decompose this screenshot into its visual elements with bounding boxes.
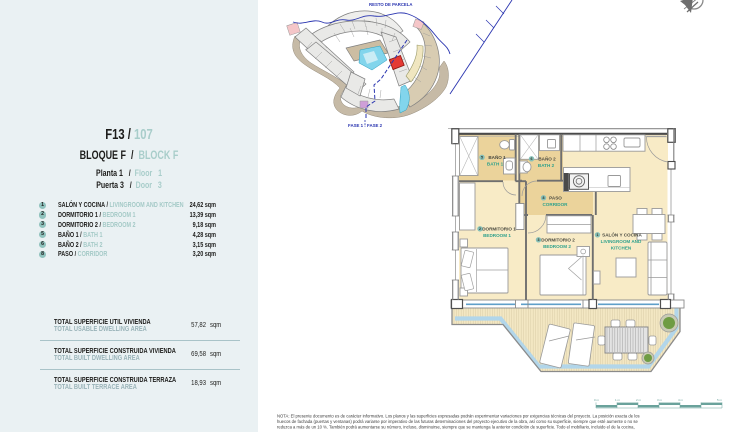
svg-text:FASE 1: FASE 1 [348,123,364,128]
svg-text:BAÑO 1: BAÑO 1 [488,154,506,160]
svg-text:NOTA: El presente documento es: NOTA: El presente documento es de caráct… [277,414,640,419]
svg-text:SALÓN Y COCINA: SALÓN Y COCINA [602,231,642,238]
svg-text:2 m: 2 m [636,398,642,402]
svg-text:3: 3 [538,238,540,242]
svg-text:1 m: 1 m [615,398,621,402]
svg-text:LIVINGROOM AND: LIVINGROOM AND [601,239,642,244]
svg-text:BATH 2: BATH 2 [538,163,555,168]
svg-text:PASO: PASO [549,196,562,201]
svg-text:DORMITORIO 2: DORMITORIO 2 [541,238,575,243]
svg-text:huecos de fachada (puertas y v: huecos de fachada (puertas y ventanas) p… [277,419,638,424]
svg-text:3 m: 3 m [657,398,663,402]
svg-text:reduzca a más de un 10 %. Tamb: reduzca a más de un 10 %. También podrá … [277,425,635,430]
svg-text:CORRIDOR: CORRIDOR [542,202,568,207]
svg-text:0 m: 0 m [594,398,600,402]
svg-text:5 m: 5 m [717,398,723,402]
svg-text:2: 2 [479,227,481,231]
svg-text:BEDROOM 1: BEDROOM 1 [483,233,511,238]
svg-text:8: 8 [543,196,545,200]
svg-text:5: 5 [481,156,483,160]
svg-text:RESTO DE PARCELA: RESTO DE PARCELA [369,2,413,7]
svg-text:BEDROOM 2: BEDROOM 2 [543,244,571,249]
svg-text:6: 6 [531,157,533,161]
svg-text:DORMITORIO 1: DORMITORIO 1 [482,227,516,232]
svg-text:FASE 2: FASE 2 [367,123,383,128]
svg-text:BATH 1: BATH 1 [487,162,504,167]
svg-text:BAÑO 2: BAÑO 2 [538,156,556,162]
svg-text:KITCHEN: KITCHEN [611,246,632,251]
svg-text:1: 1 [597,233,599,237]
svg-text:4 m: 4 m [678,398,684,402]
